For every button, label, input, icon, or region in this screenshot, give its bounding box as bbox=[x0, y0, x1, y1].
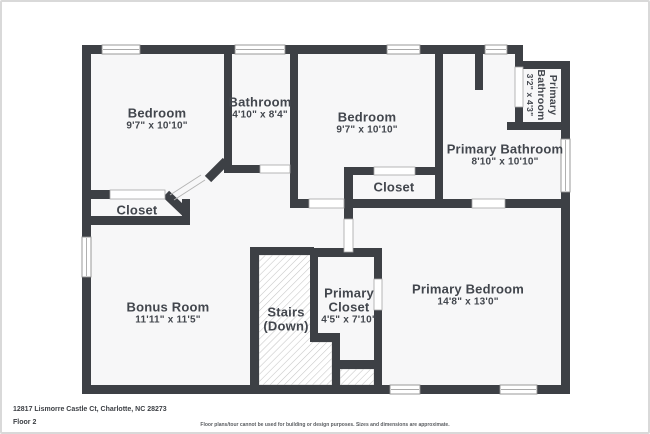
room-label-primary-bathroom-small: PrimaryBathroom3'2" x 4'3" bbox=[525, 69, 559, 120]
floorplan-drawing: Bedroom9'7" x 10'10"Bathroom4'10" x 8'4"… bbox=[2, 2, 650, 434]
room-name: Primary Bedroom bbox=[412, 282, 524, 297]
wall-stairs-top bbox=[250, 247, 314, 255]
footer-address: 12817 Lismorre Castle Ct, Charlotte, NC … bbox=[13, 406, 167, 413]
room-label-bonus-room: Bonus Room11'11" x 11'5" bbox=[127, 300, 210, 326]
wall-primary-bath-small-left-upper bbox=[515, 45, 523, 69]
wall-primary-bath-small-bottom bbox=[507, 122, 570, 130]
room-name: Primary bbox=[547, 75, 559, 116]
room-name: Closet bbox=[117, 203, 158, 218]
wall-mid-horizontal-right bbox=[505, 199, 562, 208]
wall-bathroom-bedroom2 bbox=[290, 45, 298, 207]
door-opening bbox=[309, 199, 344, 208]
door-opening bbox=[260, 165, 290, 173]
room-dimensions: 3'2" x 4'3" bbox=[525, 74, 535, 117]
room-dimensions: 9'7" x 10'10" bbox=[126, 121, 187, 132]
room-name: Closet bbox=[374, 180, 415, 195]
wall-outer-top bbox=[82, 45, 523, 54]
wall-outer-bottom bbox=[82, 385, 570, 394]
wall-primary-closet-lower-h bbox=[332, 360, 380, 369]
room-name: Bedroom bbox=[338, 110, 396, 125]
door-opening bbox=[374, 279, 382, 310]
room-label-primary-closet: PrimaryCloset4'5" x 7'10" bbox=[321, 286, 377, 326]
room-label-closet-1: Closet bbox=[117, 203, 158, 218]
stairs-hatch bbox=[340, 369, 374, 385]
wall-primary-closet-right-upper bbox=[374, 248, 382, 279]
wall-closet2-top-left bbox=[344, 167, 374, 175]
room-label-bathroom: Bathroom4'10" x 8'4" bbox=[229, 95, 292, 121]
room-label-bedroom-2: Bedroom9'7" x 10'10" bbox=[336, 110, 397, 136]
footer-disclaimer: Floor plans/tour cannot be used for buil… bbox=[2, 422, 648, 428]
wall-bedroom1-bottom bbox=[82, 190, 110, 199]
room-dimensions: 9'7" x 10'10" bbox=[336, 125, 397, 136]
wall-primary-closet-left bbox=[310, 248, 318, 338]
room-name: (Down) bbox=[263, 319, 308, 334]
door-opening bbox=[374, 167, 415, 175]
floorplan-page: Bedroom9'7" x 10'10"Bathroom4'10" x 8'4"… bbox=[0, 0, 650, 434]
wall-outer-right bbox=[561, 61, 570, 394]
room-label-stairs: Stairs(Down) bbox=[263, 305, 308, 334]
wall-stairs-left bbox=[250, 247, 259, 394]
room-name: Bedroom bbox=[128, 106, 186, 121]
room-name: Closet bbox=[329, 300, 370, 315]
wall-primary-closet-step-v bbox=[332, 333, 340, 385]
room-name: Primary bbox=[324, 286, 374, 301]
room-label-closet-2: Closet bbox=[374, 180, 415, 195]
room-dimensions: 4'10" x 8'4" bbox=[232, 110, 288, 121]
wall-bathroom-bottom bbox=[224, 165, 260, 173]
door-opening bbox=[110, 190, 165, 199]
room-label-bedroom-1: Bedroom9'7" x 10'10" bbox=[126, 106, 187, 132]
room-dimensions: 8'10" x 10'10" bbox=[471, 157, 538, 168]
room-name: Stairs bbox=[267, 305, 304, 320]
room-name: Bonus Room bbox=[127, 300, 210, 315]
room-dimensions: 14'8" x 13'0" bbox=[437, 297, 498, 308]
room-name: Bathroom bbox=[535, 69, 547, 120]
room-name: Bathroom bbox=[229, 95, 292, 110]
wall-bedroom2-right bbox=[435, 45, 443, 208]
room-dimensions: 11'11" x 11'5" bbox=[135, 315, 200, 326]
wall-bedroom2-bottom bbox=[290, 199, 309, 208]
room-name: Primary Bathroom bbox=[447, 142, 564, 157]
door-opening bbox=[515, 67, 523, 107]
door-opening bbox=[344, 219, 353, 252]
wall-mid-horizontal-left bbox=[344, 199, 472, 208]
room-dimensions: 4'5" x 7'10" bbox=[321, 315, 377, 326]
wall-primary-bath-niche bbox=[475, 54, 483, 90]
door-opening bbox=[472, 199, 505, 208]
